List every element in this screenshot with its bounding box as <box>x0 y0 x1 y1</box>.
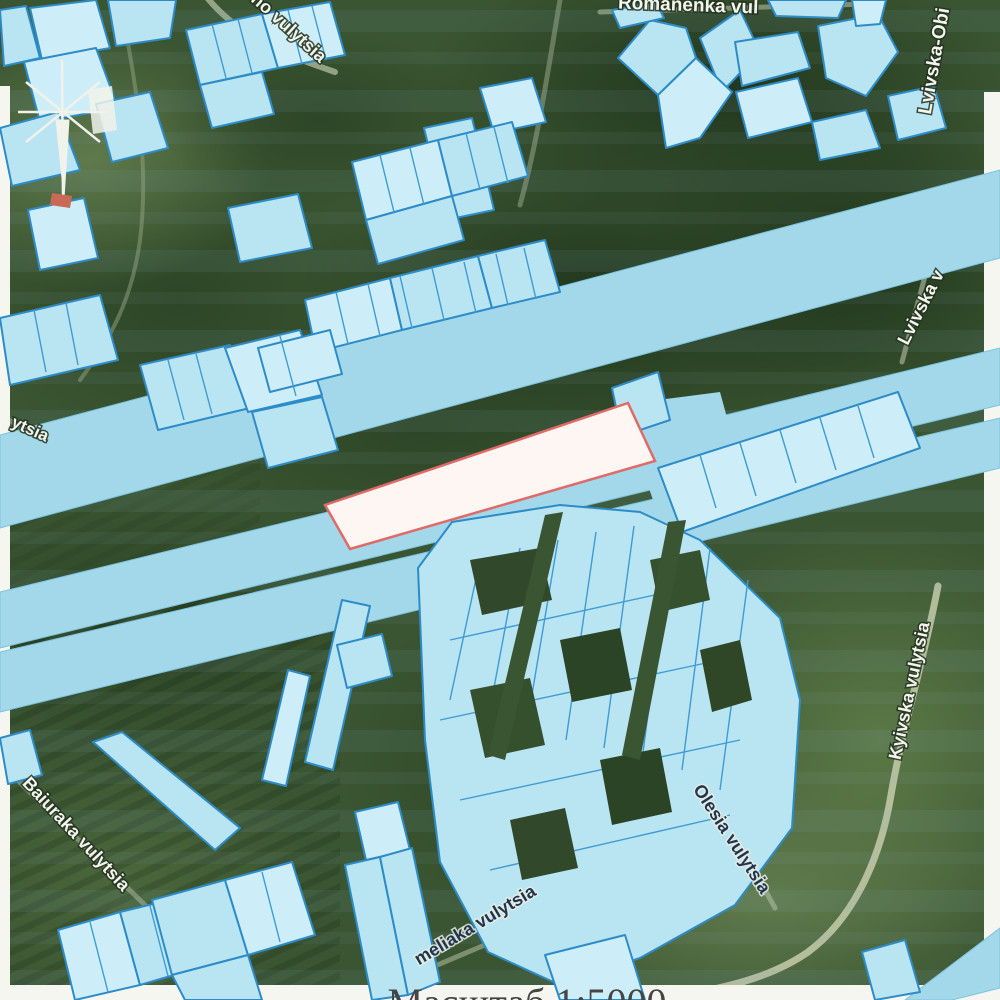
photo-gap <box>560 628 632 702</box>
parcel-polygon <box>28 198 98 270</box>
map-scale: Масштаб 1:5000 <box>387 980 666 1000</box>
parcel-polygon <box>852 0 886 26</box>
scale-label: Масштаб 1:5000 <box>387 980 666 1000</box>
scanned-map-page: Romanenka vulho vulytsiaLvivska-ObiLvivs… <box>0 0 1000 1000</box>
paper-margin <box>0 86 10 1000</box>
parcel-polygon <box>768 0 846 18</box>
cadastral-map: Romanenka vulho vulytsiaLvivska-ObiLvivs… <box>0 0 1000 1000</box>
white-roof-patch <box>88 86 117 134</box>
photo-gap <box>600 748 672 825</box>
parcel-polygon <box>108 0 176 46</box>
